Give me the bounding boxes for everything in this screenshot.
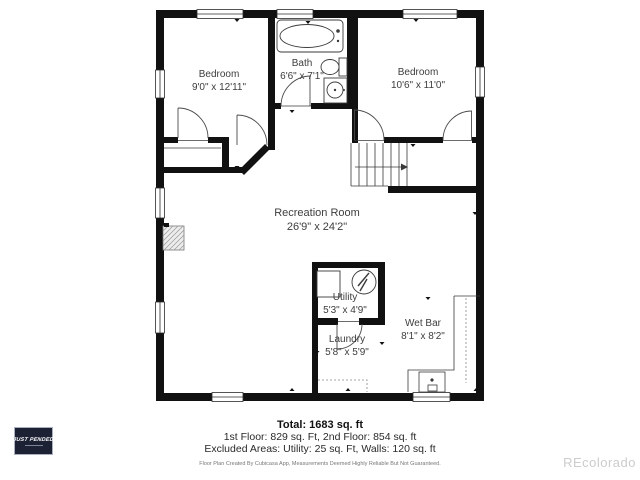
- room-name: Bedroom: [391, 67, 445, 80]
- sink-icon: [324, 78, 347, 103]
- door-arc: [443, 111, 472, 140]
- bar-sink-icon: [419, 372, 445, 392]
- room-label-bedroom-right: Bedroom 10'6" x 11'0": [391, 67, 445, 92]
- room-dims: 5'8" x 5'9": [325, 347, 369, 360]
- room-dims: 10'6" x 11'0": [391, 80, 445, 93]
- just-pended-stamp: JUST PENDED: [14, 427, 53, 455]
- window-icon: [277, 10, 313, 19]
- room-name: Laundry: [325, 334, 369, 347]
- room-label-utility: Utility 5'3" x 4'9": [323, 292, 367, 317]
- floor-plan-image: Bedroom 9'0" x 12'11" Bath 6'6" x 7'1" B…: [0, 0, 640, 480]
- window-icon: [476, 67, 485, 97]
- window-icon: [156, 188, 165, 218]
- bathtub-icon: [277, 20, 343, 52]
- room-dims: 8'1" x 8'2": [401, 331, 445, 344]
- door-arc: [354, 110, 384, 140]
- window-icon: [403, 10, 457, 19]
- stamp-subline: [25, 445, 43, 446]
- area-summary: Total: 1683 sq. ft 1st Floor: 829 sq. Ft…: [0, 419, 640, 468]
- room-label-bath: Bath 6'6" x 7'1": [280, 58, 324, 83]
- window-icon: [156, 302, 165, 333]
- room-label-wet-bar: Wet Bar 8'1" x 8'2": [401, 318, 445, 343]
- window-icon: [197, 10, 243, 19]
- toilet-icon: [321, 58, 347, 76]
- door-arc: [237, 115, 267, 145]
- stamp-label: JUST PENDED: [13, 437, 55, 443]
- room-dims: 6'6" x 7'1": [280, 71, 324, 84]
- staircase: [351, 143, 408, 186]
- room-name: Utility: [323, 292, 367, 305]
- stairs-direction-arrow: [355, 164, 408, 171]
- room-name: Bath: [280, 58, 324, 71]
- room-name: Recreation Room: [274, 206, 360, 220]
- fireplace-hatch: [163, 223, 184, 250]
- room-label-recreation-room: Recreation Room 26'9" x 24'2": [274, 206, 360, 234]
- window-icon: [156, 70, 165, 98]
- room-dims: 9'0" x 12'11": [192, 82, 246, 95]
- room-dims: 26'9" x 24'2": [274, 220, 360, 234]
- recolorado-watermark: REcolorado: [563, 455, 636, 470]
- room-name: Bedroom: [192, 69, 246, 82]
- disclaimer-text: Floor Plan Created By Cubicasa App, Meas…: [0, 461, 640, 468]
- window-icon: [413, 393, 450, 402]
- room-label-bedroom-left: Bedroom 9'0" x 12'11": [192, 69, 246, 94]
- excluded-areas-text: Excluded Areas: Utility: 25 sq. Ft, Wall…: [0, 444, 640, 456]
- floor-areas-text: 1st Floor: 829 sq. Ft, 2nd Floor: 854 sq…: [0, 432, 640, 444]
- room-name: Wet Bar: [401, 318, 445, 331]
- washer-dryer-area: [318, 380, 367, 392]
- window-icon: [212, 393, 243, 402]
- room-label-laundry: Laundry 5'8" x 5'9": [325, 334, 369, 359]
- door-arc: [178, 108, 208, 138]
- wet-bar-counter: [408, 296, 480, 392]
- water-heater-icon: [352, 270, 376, 294]
- room-dims: 5'3" x 4'9": [323, 305, 367, 318]
